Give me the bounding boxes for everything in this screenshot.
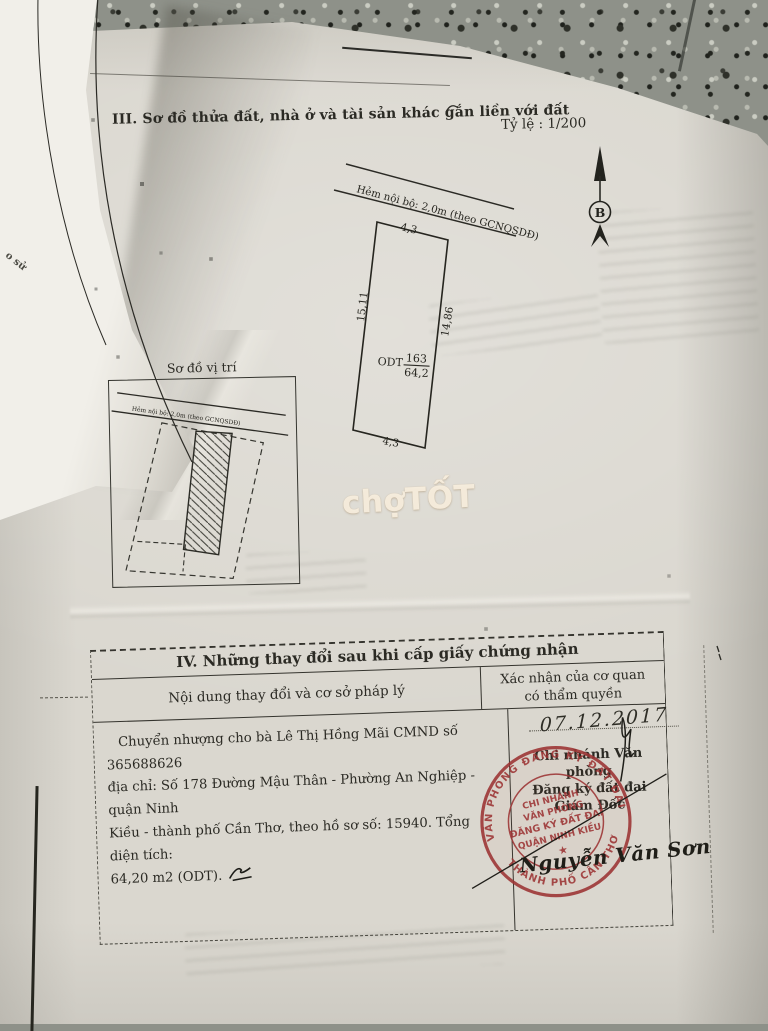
signature-flourish: [446, 701, 700, 909]
section4-table: IV. Những thay đổi sau khi cấp giấy chứn…: [90, 631, 673, 945]
land-use-label: ODT: [377, 355, 403, 369]
col-header-confirm: Xác nhận của cơ quan có thẩm quyền: [481, 661, 665, 709]
arrow-head: [594, 146, 606, 181]
left-length-label: 15,11: [355, 291, 371, 322]
location-diagram-frame: Hẻm nội bộ: 2,0m (theo GCNQSDĐ): [108, 376, 300, 588]
parcel-label: ODT 163 64,2: [377, 350, 430, 380]
location-diagram-title: Sơ đồ vị trí: [104, 358, 300, 377]
parcel-area: 64,2: [404, 366, 429, 380]
sub-parcel-dashed: [137, 540, 186, 572]
scale-label: Tỷ lệ : 1/200: [501, 115, 587, 133]
right-length-label: 14,86: [439, 306, 456, 338]
arrow-tail: [591, 224, 609, 247]
chotot-watermark: chợTỐT: [341, 479, 476, 522]
parcel-outline: [353, 222, 448, 448]
north-arrow-icon: B: [578, 144, 622, 250]
subject-parcel-hatched: [181, 430, 235, 555]
granite-joint-line: [678, 0, 697, 71]
ink-tick-mark: [714, 644, 724, 664]
location-diagram: Sơ đồ vị trí Hẻm nội bộ: 2,0m (theo GCNQ…: [104, 358, 305, 596]
photo-of-land-certificate: { "meta": { "paper_color": "#dad7cf", "s…: [0, 0, 768, 1024]
location-diagram-sketch: Hẻm nội bộ: 2,0m (theo GCNQSDĐ): [109, 377, 297, 585]
table-body-row: Chuyển nhượng cho bà Lê Thị Hồng Mãi CMN…: [93, 704, 672, 944]
ink-specks: [0, 0, 2, 2]
north-label: B: [595, 205, 606, 220]
handwritten-check-mark: [226, 864, 255, 883]
back-width-label: 4,3: [381, 435, 400, 450]
handwritten-tick: [444, 100, 462, 116]
confirmation-cell: 07.12.2017 Chi nhánh Văn phòng Đăng ký đ…: [508, 704, 672, 930]
plot-diagram: Hẻm nội bộ: 2,0m (theo GCNQSDĐ) 4,3 15,1…: [320, 150, 550, 472]
parcel-number: 163: [406, 351, 428, 365]
